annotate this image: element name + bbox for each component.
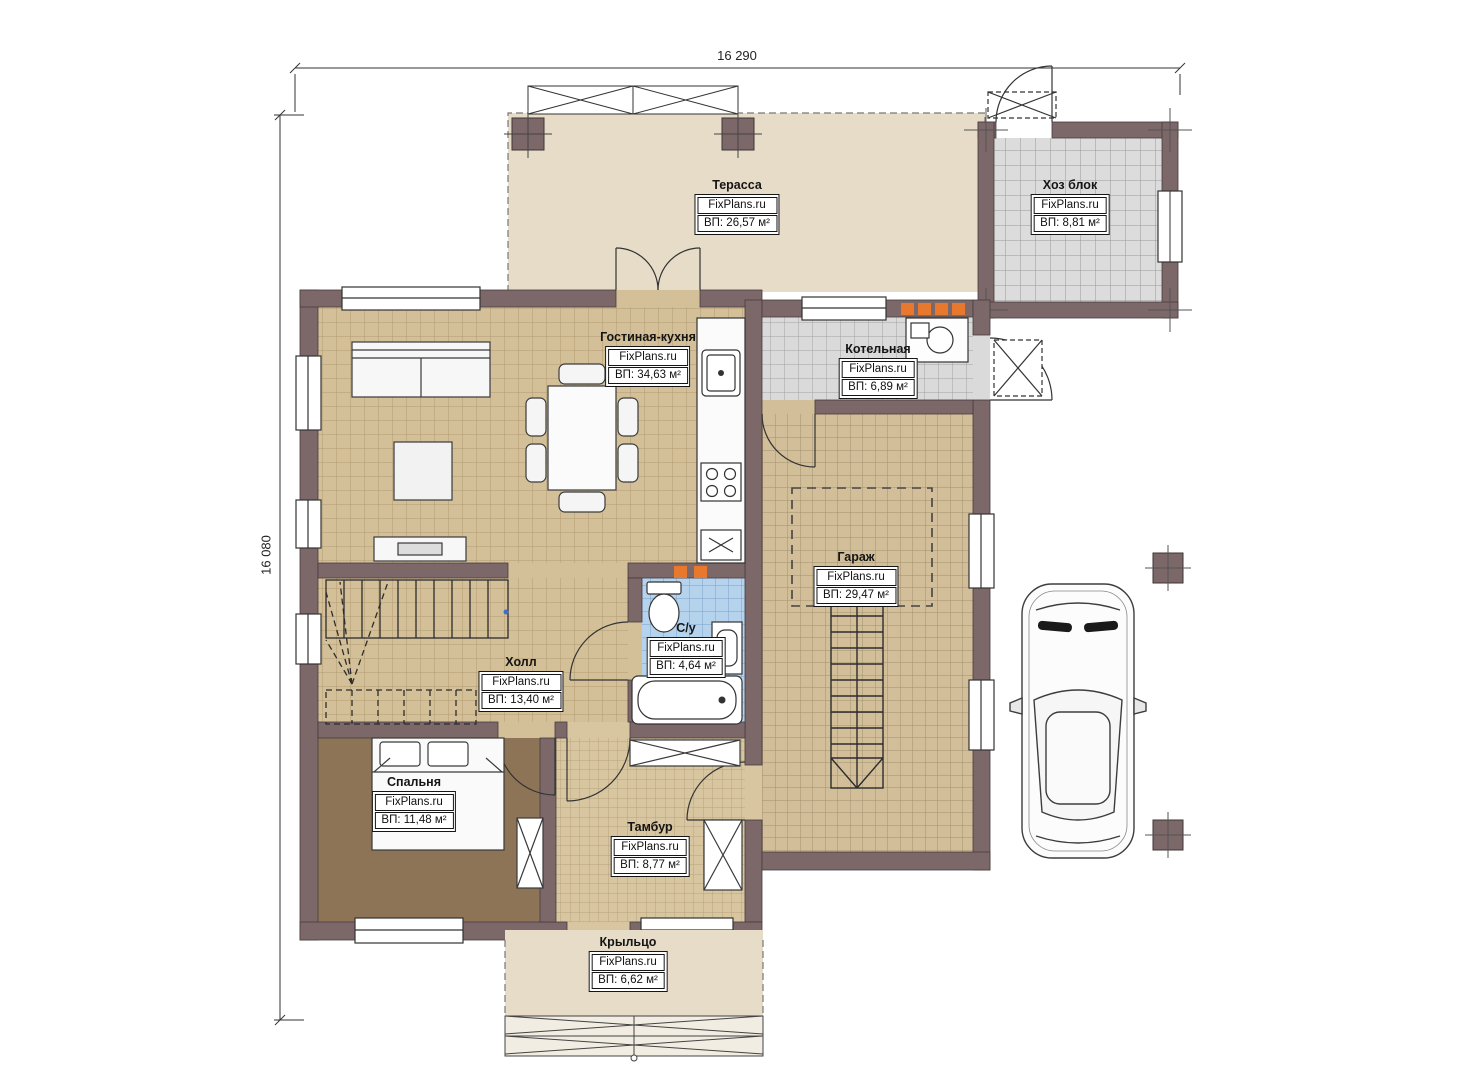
room-info-box: FixPlans.ru ВП: 6,62 м² [589, 951, 668, 992]
room-label-utility: Хоз блок FixPlans.ru ВП: 8,81 м² [1031, 178, 1110, 235]
room-name: Тамбур [627, 820, 672, 834]
porch-steps [505, 1016, 763, 1061]
room-info-box: FixPlans.ru ВП: 13,40 м² [478, 671, 563, 712]
tv-stand [374, 537, 466, 561]
kitchen-cabinet [701, 530, 741, 560]
room-area: ВП: 13,40 м² [481, 692, 561, 709]
room-area: ВП: 8,77 м² [613, 857, 687, 874]
coffee-table [394, 442, 452, 500]
brand-link: FixPlans.ru [816, 569, 896, 586]
room-name: Спальня [387, 775, 441, 789]
room-area: ВП: 29,47 м² [816, 587, 896, 604]
car [1010, 584, 1146, 858]
room-info-box: FixPlans.ru ВП: 8,77 м² [611, 836, 690, 877]
utility-window [1158, 191, 1182, 262]
brand-link: FixPlans.ru [841, 361, 915, 378]
room-area: ВП: 6,89 м² [841, 379, 915, 396]
kitchen-stove [701, 463, 741, 501]
floor-plan-drawing [0, 0, 1473, 1080]
room-name: Крыльцо [600, 935, 657, 949]
floor-plan: 16 290 16 080 Терасса FixPlans.ru ВП: 26… [0, 0, 1473, 1080]
window [342, 287, 480, 310]
room-name: Котельная [845, 342, 910, 356]
room-info-box: FixPlans.ru ВП: 11,48 м² [372, 791, 456, 832]
window [355, 918, 463, 943]
terrace-steps [528, 86, 738, 114]
room-area: ВП: 6,62 м² [591, 972, 665, 989]
sofa [352, 342, 490, 397]
room-label-terrace: Терасса FixPlans.ru ВП: 26,57 м² [694, 178, 779, 235]
window [802, 297, 886, 320]
room-label-living: Гостиная-кухня FixPlans.ru ВП: 34,63 м² [600, 330, 696, 387]
brand-link: FixPlans.ru [1033, 197, 1107, 214]
kitchen-counter [697, 318, 745, 563]
boiler-exterior-door [990, 338, 1052, 400]
room-info-box: FixPlans.ru ВП: 4,64 м² [647, 637, 726, 678]
brand-link: FixPlans.ru [481, 674, 561, 691]
dimension-height-label: 16 080 [259, 535, 274, 575]
room-area: ВП: 11,48 м² [374, 812, 453, 829]
utility-door [988, 66, 1056, 122]
room-name: Холл [505, 655, 536, 669]
room-name: Терасса [712, 178, 762, 192]
room-info-box: FixPlans.ru ВП: 26,57 м² [694, 194, 779, 235]
room-label-porch: Крыльцо FixPlans.ru ВП: 6,62 м² [589, 935, 668, 992]
room-label-boiler: Котельная FixPlans.ru ВП: 6,89 м² [839, 342, 918, 399]
brand-link: FixPlans.ru [613, 839, 687, 856]
room-info-box: FixPlans.ru ВП: 29,47 м² [813, 566, 898, 607]
window [296, 500, 321, 548]
brand-link: FixPlans.ru [697, 197, 777, 214]
room-info-box: FixPlans.ru ВП: 8,81 м² [1031, 194, 1110, 235]
window [296, 356, 321, 430]
brand-link: FixPlans.ru [374, 794, 453, 811]
brand-link: FixPlans.ru [591, 954, 665, 971]
room-name: Гараж [837, 550, 874, 564]
bedroom-closet [517, 818, 543, 888]
room-name: С/у [676, 621, 695, 635]
room-info-box: FixPlans.ru ВП: 6,89 м² [839, 358, 918, 399]
room-area: ВП: 4,64 м² [649, 658, 723, 675]
room-label-tambur: Тамбур FixPlans.ru ВП: 8,77 м² [611, 820, 690, 877]
kitchen-sink [702, 350, 740, 396]
dimension-width-label: 16 290 [717, 48, 757, 63]
site-pillars [1145, 545, 1191, 858]
room-label-bathroom: С/у FixPlans.ru ВП: 4,64 м² [647, 621, 726, 678]
window [296, 614, 321, 664]
window [969, 680, 994, 750]
room-info-box: FixPlans.ru ВП: 34,63 м² [605, 346, 690, 387]
room-label-bedroom: Спальня FixPlans.ru ВП: 11,48 м² [372, 775, 456, 832]
room-label-hall: Холл FixPlans.ru ВП: 13,40 м² [478, 655, 563, 712]
window [969, 514, 994, 588]
room-area: ВП: 26,57 м² [697, 215, 777, 232]
room-name: Хоз блок [1043, 178, 1097, 192]
room-area: ВП: 34,63 м² [608, 367, 688, 384]
room-label-garage: Гараж FixPlans.ru ВП: 29,47 м² [813, 550, 898, 607]
brand-link: FixPlans.ru [649, 640, 723, 657]
bathtub [632, 676, 742, 724]
room-area: ВП: 8,81 м² [1033, 215, 1107, 232]
room-name: Гостиная-кухня [600, 330, 696, 344]
brand-link: FixPlans.ru [608, 349, 688, 366]
